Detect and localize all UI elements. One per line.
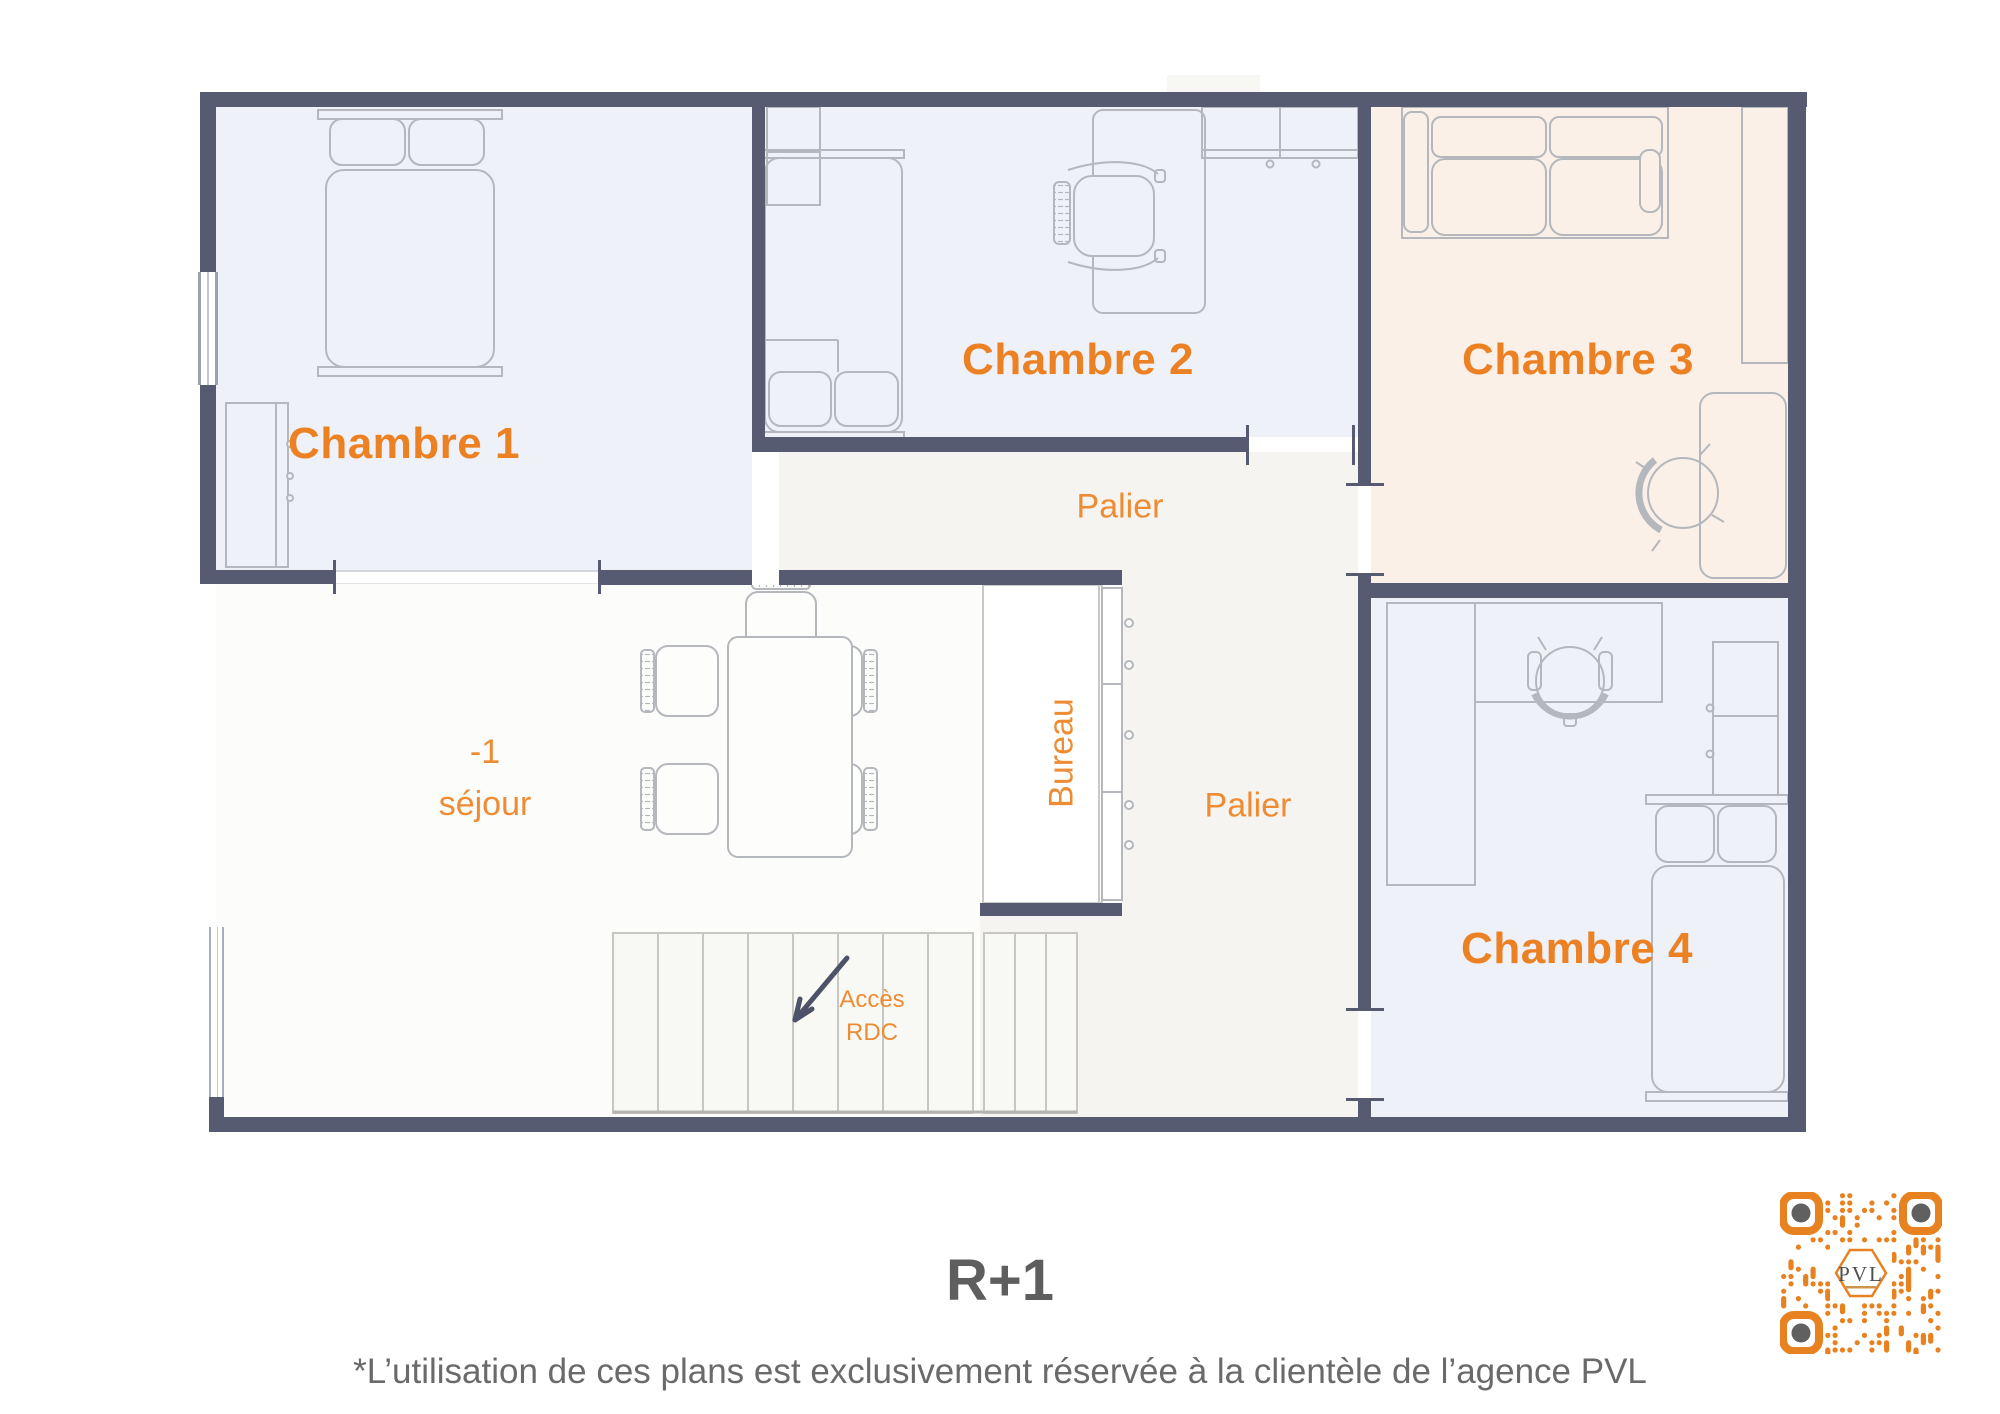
chambre1-wardrobe xyxy=(226,403,293,567)
chambre3-sofa xyxy=(1402,107,1668,238)
door-post xyxy=(598,560,601,594)
label-sejour-line2: séjour xyxy=(439,778,532,830)
chambre3-chair xyxy=(1636,444,1724,551)
chambre2-bed xyxy=(763,150,904,441)
chambre4-cabinet xyxy=(1707,642,1779,795)
chambre1-bed xyxy=(318,110,502,376)
qr-logo-text: PVL xyxy=(1838,1262,1884,1286)
wall-chambre2-chambre3 xyxy=(1358,107,1371,485)
chambre1-window xyxy=(198,272,218,385)
disclaimer-text: *L’utilisation de ces plans est exclusiv… xyxy=(0,1352,2000,1392)
floor-plan: Chambre 1 Chambre 2 Chambre 3 Chambre 4 … xyxy=(0,0,2000,1414)
door-post xyxy=(1346,573,1384,576)
qr-logo-caption-line xyxy=(1846,1286,1876,1289)
furniture-layer xyxy=(0,0,2000,1414)
wall-chambre4-left-stub xyxy=(1358,1100,1371,1117)
door-post xyxy=(1352,425,1355,465)
chambre4-desk-chair xyxy=(1528,637,1612,726)
room-label-chambre4: Chambre 4 xyxy=(1461,924,1693,974)
wall-bureau-top-stub xyxy=(980,572,1122,585)
door-post xyxy=(1346,1098,1384,1101)
sejour-dining-set xyxy=(641,576,877,857)
room-label-chambre3: Chambre 3 xyxy=(1462,335,1694,385)
wall-chambre1-chambre2 xyxy=(752,107,765,452)
wall-bureau-bottom-stub xyxy=(980,903,1122,916)
door-post xyxy=(1246,425,1249,465)
label-palier-top: Palier xyxy=(1077,488,1164,527)
chambre3-desk xyxy=(1700,393,1786,578)
wall-chambre1-bottom-left xyxy=(200,570,335,584)
label-bureau: Bureau xyxy=(1043,698,1082,808)
qr-code-graphic: PVL xyxy=(1780,1192,1942,1354)
label-acces-line2: RDC xyxy=(839,1016,904,1049)
room-label-chambre2: Chambre 2 xyxy=(962,335,1194,385)
wall-corner-bottom-left xyxy=(209,1095,224,1132)
room-label-chambre1: Chambre 1 xyxy=(288,419,520,469)
qr-code: PVL xyxy=(1780,1192,1942,1354)
wall-chambre2-bottom xyxy=(752,437,1248,452)
chambre3-closet xyxy=(1742,107,1788,363)
door-post xyxy=(1346,483,1384,486)
wall-top xyxy=(208,92,1807,107)
floor-title: R+1 xyxy=(0,1247,2000,1314)
passage-gap xyxy=(752,452,779,585)
chambre4-desk xyxy=(1475,603,1662,702)
qr-center-logo: PVL xyxy=(1830,1244,1892,1302)
label-acces-rdc: Accès RDC xyxy=(839,983,904,1049)
label-sejour-line1: -1 xyxy=(439,726,532,778)
sejour-railing xyxy=(209,927,224,1097)
label-sejour: -1 séjour xyxy=(439,726,532,830)
chambre4-wardrobe xyxy=(1387,603,1475,885)
label-acces-line1: Accès xyxy=(839,983,904,1016)
chambre2-desk-chair xyxy=(1054,162,1165,270)
wall-right xyxy=(1788,92,1806,1132)
wall-chambre4-left xyxy=(1358,598,1371,1010)
label-palier-right: Palier xyxy=(1205,787,1292,826)
wall-chambre3-bottom xyxy=(1358,583,1788,598)
chambre1-door-opening xyxy=(336,570,598,584)
wall-bottom xyxy=(209,1117,1806,1132)
chambre2-wardrobe xyxy=(1202,107,1358,168)
door-post xyxy=(1346,1008,1384,1011)
